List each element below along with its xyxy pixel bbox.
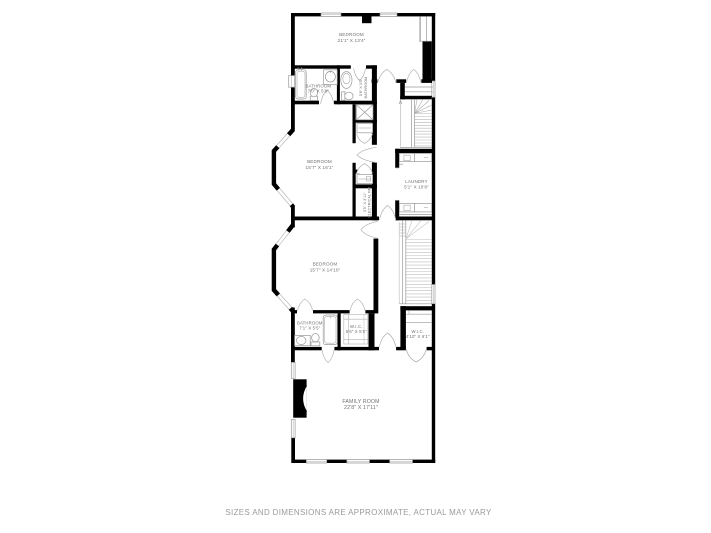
svg-text:BEDROOM: BEDROOM xyxy=(313,261,338,266)
svg-text:7'1" X 5'5": 7'1" X 5'5" xyxy=(299,325,320,330)
svg-text:21'1" X 13'4": 21'1" X 13'4" xyxy=(338,38,366,43)
svg-text:FAMILY ROOM: FAMILY ROOM xyxy=(342,399,379,405)
svg-text:SIZES AND DIMENSIONS ARE APPRO: SIZES AND DIMENSIONS ARE APPROXIMATE, AC… xyxy=(225,508,492,517)
svg-text:BEDROOM: BEDROOM xyxy=(307,159,332,164)
svg-text:15'7" X 14'10": 15'7" X 14'10" xyxy=(310,267,341,272)
svg-text:BEDROOM: BEDROOM xyxy=(339,32,364,37)
svg-text:ELECTRICAL RM: ELECTRICAL RM xyxy=(368,187,372,218)
svg-text:5'8" X 3'5": 5'8" X 3'5" xyxy=(359,78,363,96)
svg-text:7'0" X 5'8": 7'0" X 5'8" xyxy=(308,88,329,93)
svg-text:5'1" X 10'8": 5'1" X 10'8" xyxy=(404,184,429,189)
svg-text:BATHROOM: BATHROOM xyxy=(364,77,368,99)
svg-text:4'10" X 6'1": 4'10" X 6'1" xyxy=(406,334,430,339)
svg-text:15'7" X 16'1": 15'7" X 16'1" xyxy=(306,165,334,170)
svg-text:22'8" X 17'11": 22'8" X 17'11" xyxy=(344,405,378,411)
svg-text:5'6" X 5'5": 5'6" X 5'5" xyxy=(346,329,367,334)
svg-text:LAUNDRY: LAUNDRY xyxy=(405,179,427,184)
svg-text:3'5" X 3'11": 3'5" X 3'11" xyxy=(363,192,367,212)
